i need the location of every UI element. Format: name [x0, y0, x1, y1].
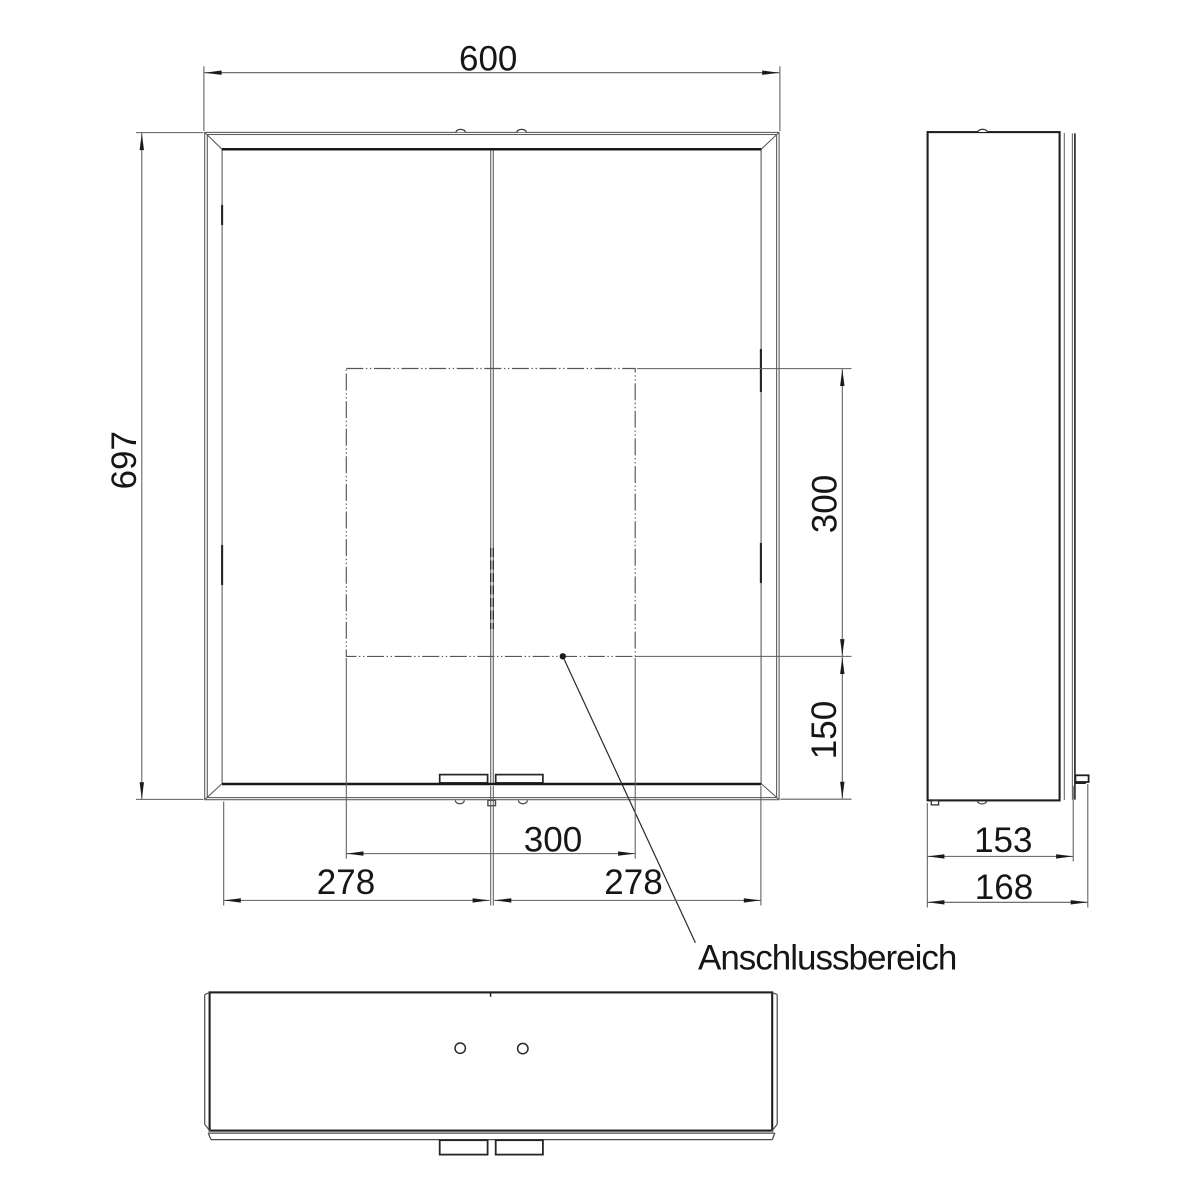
svg-text:Anschlussbereich: Anschlussbereich	[698, 939, 956, 978]
svg-text:168: 168	[975, 868, 1033, 907]
svg-text:300: 300	[806, 475, 845, 533]
svg-text:153: 153	[974, 821, 1032, 860]
svg-text:697: 697	[105, 431, 144, 489]
svg-text:150: 150	[805, 701, 844, 759]
svg-text:278: 278	[604, 863, 662, 902]
svg-text:300: 300	[524, 820, 582, 859]
svg-text:278: 278	[317, 863, 375, 902]
svg-text:600: 600	[459, 40, 517, 79]
